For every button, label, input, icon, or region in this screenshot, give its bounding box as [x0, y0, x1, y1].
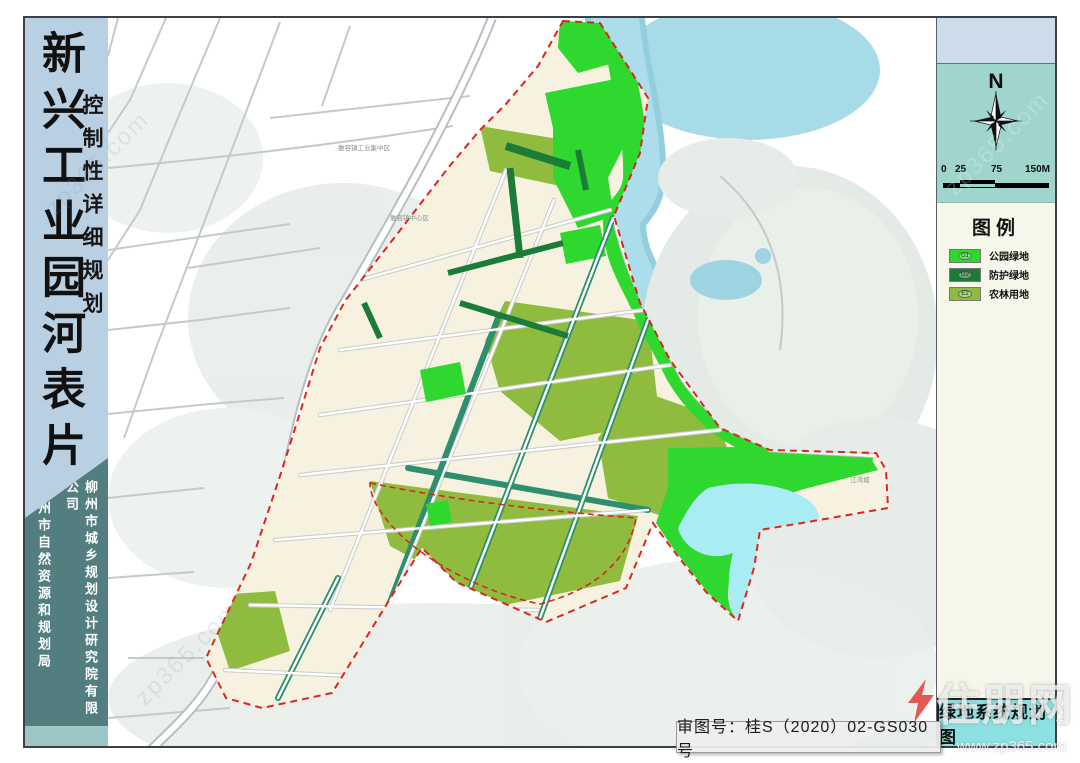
- scale-bar: [943, 180, 1049, 188]
- org-bureau: 柳州市自然资源和规划局: [34, 480, 53, 730]
- approval-number-bar: 审图号：桂S（2020）02-GS030号: [676, 721, 941, 753]
- swatch-code: E2: [958, 290, 971, 298]
- map-frame: 新兴工业园河表片 控制性详细规划 柳州市城乡规划设计研究院有限公司 柳州市自然资…: [23, 16, 1057, 748]
- scale-tick: 0: [941, 164, 947, 175]
- compass-section: N 0: [937, 64, 1055, 203]
- region-label: 雒容镇中心区: [390, 213, 430, 222]
- legend-label: 公园绿地: [989, 248, 1029, 263]
- scale-tick: 150M: [1025, 164, 1050, 175]
- swatch-code: G1: [958, 252, 972, 260]
- left-title-panel: 新兴工业园河表片 控制性详细规划 柳州市城乡规划设计研究院有限公司 柳州市自然资…: [25, 18, 108, 746]
- park-green-swatch: G1: [949, 249, 981, 263]
- scale-ticks: 0 25 75 150M: [941, 164, 1051, 176]
- legend-item-park: G1 公园绿地: [949, 248, 1055, 263]
- site-url-watermark: www.zp365.com: [957, 738, 1066, 755]
- right-info-panel: N 0: [936, 18, 1055, 746]
- legend-item-protect: G2 防护绿地: [949, 267, 1055, 282]
- legend-section: 图例 G1 公园绿地 G2 防护绿地 E2 农: [937, 203, 1055, 698]
- org-institute: 柳州市城乡规划设计研究院有限公司: [62, 480, 100, 730]
- agroforestry-swatch: E2: [949, 287, 981, 301]
- right-panel-top-strip: [937, 18, 1055, 64]
- organization-columns: 柳州市城乡规划设计研究院有限公司 柳州市自然资源和规划局: [25, 480, 100, 730]
- region-label: 江湾城: [850, 475, 870, 484]
- legend-label: 农林用地: [989, 286, 1029, 301]
- region-label: 雒容镇工业集中区: [338, 143, 391, 152]
- scale-tick: 75: [991, 164, 1002, 175]
- legend-item-agro: E2 农林用地: [949, 286, 1055, 301]
- plan-subtitle: 控制性详细规划: [77, 94, 107, 354]
- legend-title: 图例: [937, 213, 1055, 240]
- map-canvas: 雒容镇工业集中区 雒容镇中心区 江湾城: [108, 18, 937, 746]
- legend-label: 防护绿地: [989, 267, 1029, 282]
- page: 新兴工业园河表片 控制性详细规划 柳州市城乡规划设计研究院有限公司 柳州市自然资…: [0, 0, 1080, 763]
- protective-green-swatch: G2: [949, 268, 981, 282]
- swatch-code: G2: [958, 271, 972, 279]
- org-panel-bottom-strip: [25, 726, 108, 746]
- compass-rose-icon: [964, 90, 1028, 152]
- scale-tick: 25: [955, 164, 966, 175]
